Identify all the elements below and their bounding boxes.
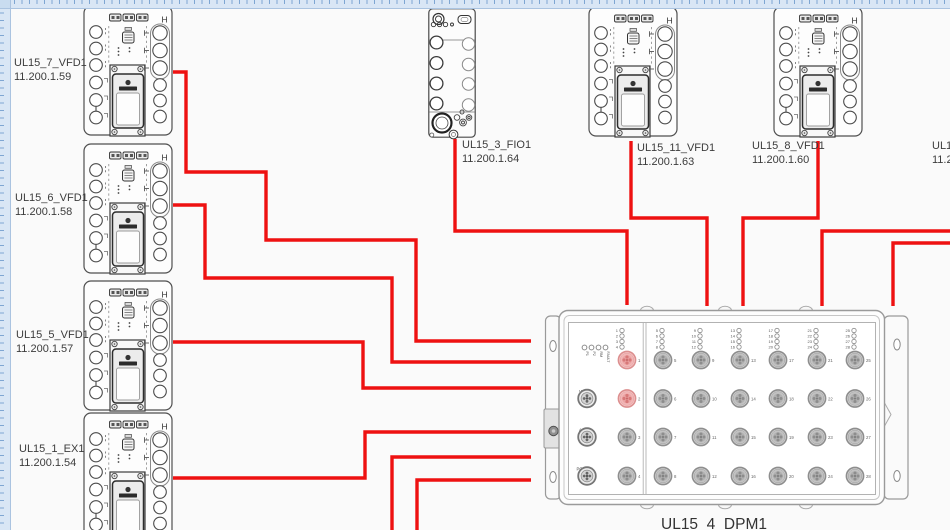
port-led [660,345,664,349]
switch-port-19 [769,428,786,445]
diagram-svg: H [0,0,950,530]
switch-port-17 [769,351,786,368]
device-ip: 11.2 [932,154,950,168]
device-name: UL15_8_VFD1 [752,140,825,154]
port-led-number: 28 [846,344,851,349]
port-number: 23 [828,435,833,440]
port-led-number: 16 [731,344,736,349]
port-led [814,328,818,332]
device-name: UL15_11_VFD1 [637,142,715,156]
port-led [620,345,624,349]
port-led [852,345,856,349]
device-ip: 11.200.1.58 [15,206,88,220]
port-led-number: 22 [808,333,813,338]
wire-UL15_7_VFD1[interactable] [173,72,531,341]
device-ul15-7-vfd1[interactable] [84,6,172,136]
ruler-corner [0,0,11,9]
label-ul15-4-dpm1[interactable]: UL15_4_DPM1 [661,516,767,530]
port-led-number: 12 [692,344,697,349]
port-led-number: 20 [769,344,774,349]
device-ip: 11.200.1.59 [14,71,87,85]
device-ip: 11.200.1.64 [462,153,531,167]
switch-port-8 [654,467,671,484]
switch-port-6 [654,390,671,407]
port-led [698,328,702,332]
port-number: 16 [751,474,756,479]
port-number: 10 [712,396,717,401]
wire-UL15_6_VFD1[interactable] [173,205,531,362]
port-led [620,339,624,343]
port-number: 11 [712,435,717,440]
wire-offscreen-right[interactable] [893,243,950,306]
port-led [852,339,856,343]
port-number: 13 [751,358,756,363]
switch-port-26 [846,390,863,407]
port-led [737,339,741,343]
port-led-number: 23 [808,339,813,344]
label-ul15-7-vfd1[interactable]: UL15_7_VFD1 11.200.1.59 [14,57,87,84]
diagram-canvas: H [0,0,950,530]
port-led [698,334,702,338]
status-led-label: RM [599,352,603,358]
port-led-number: 24 [808,344,813,349]
port-number: 21 [828,358,833,363]
switch-port-1-connected [618,351,635,368]
port-led [775,339,779,343]
port-led [737,334,741,338]
label-ul15-1-ex1[interactable]: UL15_1_EX1 11.200.1.54 [19,443,84,470]
switch-port-10 [692,390,709,407]
port-led [660,334,664,338]
port-led [737,345,741,349]
port-led-number: 14 [731,333,736,338]
device-ip: 11.200.1.54 [19,457,84,471]
wire-UL15_1_EX1[interactable] [173,432,531,478]
port-number: 22 [828,396,833,401]
port-led [737,328,741,332]
switch-port-22 [808,390,825,407]
device-ip: 11.200.1.60 [752,154,825,168]
switch-port-21 [808,351,825,368]
port-number: 15 [751,435,756,440]
switch-port-23 [808,428,825,445]
label-ul15-5-vfd1[interactable]: UL15_5_VFD1 11.200.1.57 [16,329,89,356]
aux-connector-power [578,467,596,485]
port-led [698,339,702,343]
port-number: 18 [789,396,794,401]
label-ul15-6-vfd1[interactable]: UL15_6_VFD1 11.200.1.58 [15,192,88,219]
wire-offscreen-bottom[interactable] [392,457,531,530]
port-number: 14 [751,396,756,401]
device-ul15-6-vfd1[interactable] [84,144,172,274]
port-led-number: 26 [846,333,851,338]
label-ul15-3-fio1[interactable]: UL15_3_FIO1 11.200.1.64 [462,139,531,166]
port-led [698,345,702,349]
port-led-number: 27 [846,339,851,344]
port-number: 17 [789,358,794,363]
device-ul15-5-vfd1[interactable] [84,281,172,411]
port-number: 28 [866,474,871,479]
aux-connector-v24 [578,390,596,408]
port-led [775,334,779,338]
port-led [814,345,818,349]
switch-port-18 [769,390,786,407]
status-led-fault [603,345,608,350]
switch-port-16 [731,467,748,484]
switch-port-4 [618,467,635,484]
switch-right-bracket [884,316,908,499]
device-name: UL15_3_FIO1 [462,139,531,153]
device-name: UL15_5_VFD1 [16,329,89,343]
switch-port-11 [692,428,709,445]
port-led-number: 19 [769,339,774,344]
switch-port-20 [769,467,786,484]
port-number: 20 [789,474,794,479]
switch-panel [569,323,876,495]
device-ul15-4-dpm1[interactable]: P1P2RMFAULT12341234567856789101112910111… [544,306,908,509]
switch-port-13 [731,351,748,368]
port-led [814,334,818,338]
status-led-rm [596,345,601,350]
port-number: 12 [712,474,717,479]
port-led-number: 21 [808,328,813,333]
switch-port-24 [808,467,825,484]
device-ul15-1-ex1[interactable] [84,413,172,530]
device-ip: 11.200.1.63 [637,156,715,170]
device-name: UL15_6_VFD1 [15,192,88,206]
port-led [852,334,856,338]
port-led-number: 17 [769,328,774,333]
switch-port-28 [846,467,863,484]
label-ul15-11-vfd1[interactable]: UL15_11_VFD1 11.200.1.63 [637,142,715,169]
switch-port-3 [618,428,635,445]
port-number: 24 [828,474,833,479]
label-offscreen-right-device[interactable]: UL15 11.2 [932,140,950,167]
port-led [775,345,779,349]
device-ul15-8-vfd1[interactable] [774,7,862,137]
port-led [620,334,624,338]
switch-port-5 [654,351,671,368]
aux-connector-aca [578,428,596,446]
status-led-label: P2 [592,352,596,356]
switch-port-9 [692,351,709,368]
label-ul15-8-vfd1[interactable]: UL15_8_VFD1 11.200.1.60 [752,140,825,167]
switch-port-25 [846,351,863,368]
port-led [775,328,779,332]
port-led-number: 13 [731,328,736,333]
port-led [660,339,664,343]
port-number: 25 [866,358,871,363]
port-led [852,328,856,332]
port-number: 19 [789,435,794,440]
device-name: UL15_1_EX1 [19,443,84,457]
device-name: UL15_7_VFD1 [14,57,87,71]
status-led-label: FAULT [606,352,610,364]
port-led [660,328,664,332]
port-number: 26 [866,396,871,401]
port-led [620,328,624,332]
switch-port-27 [846,428,863,445]
left-device-stack [84,6,172,530]
status-led-p1 [582,345,587,350]
port-led-number: 10 [692,333,697,338]
status-led-label: P1 [585,352,589,356]
port-led-number: 25 [846,328,851,333]
device-ul15-3-fio1[interactable] [429,9,475,139]
ruler-horizontal [0,0,950,9]
device-name: UL15 [932,140,950,154]
switch-port-15 [731,428,748,445]
device-ul15-11-vfd1[interactable] [589,7,677,137]
switch-port-2-connected [618,390,635,407]
port-number: 27 [866,435,871,440]
switch-port-12 [692,467,709,484]
port-led-number: 18 [769,333,774,338]
port-led [814,339,818,343]
wire-offscreen-bottom[interactable] [417,480,531,530]
switch-port-7 [654,428,671,445]
ruler-vertical [0,0,11,530]
port-led-number: 15 [731,339,736,344]
switch-port-14 [731,390,748,407]
status-led-p2 [589,345,594,350]
wire-UL15_5_VFD1[interactable] [173,342,531,388]
device-ip: 11.200.1.57 [16,343,89,357]
